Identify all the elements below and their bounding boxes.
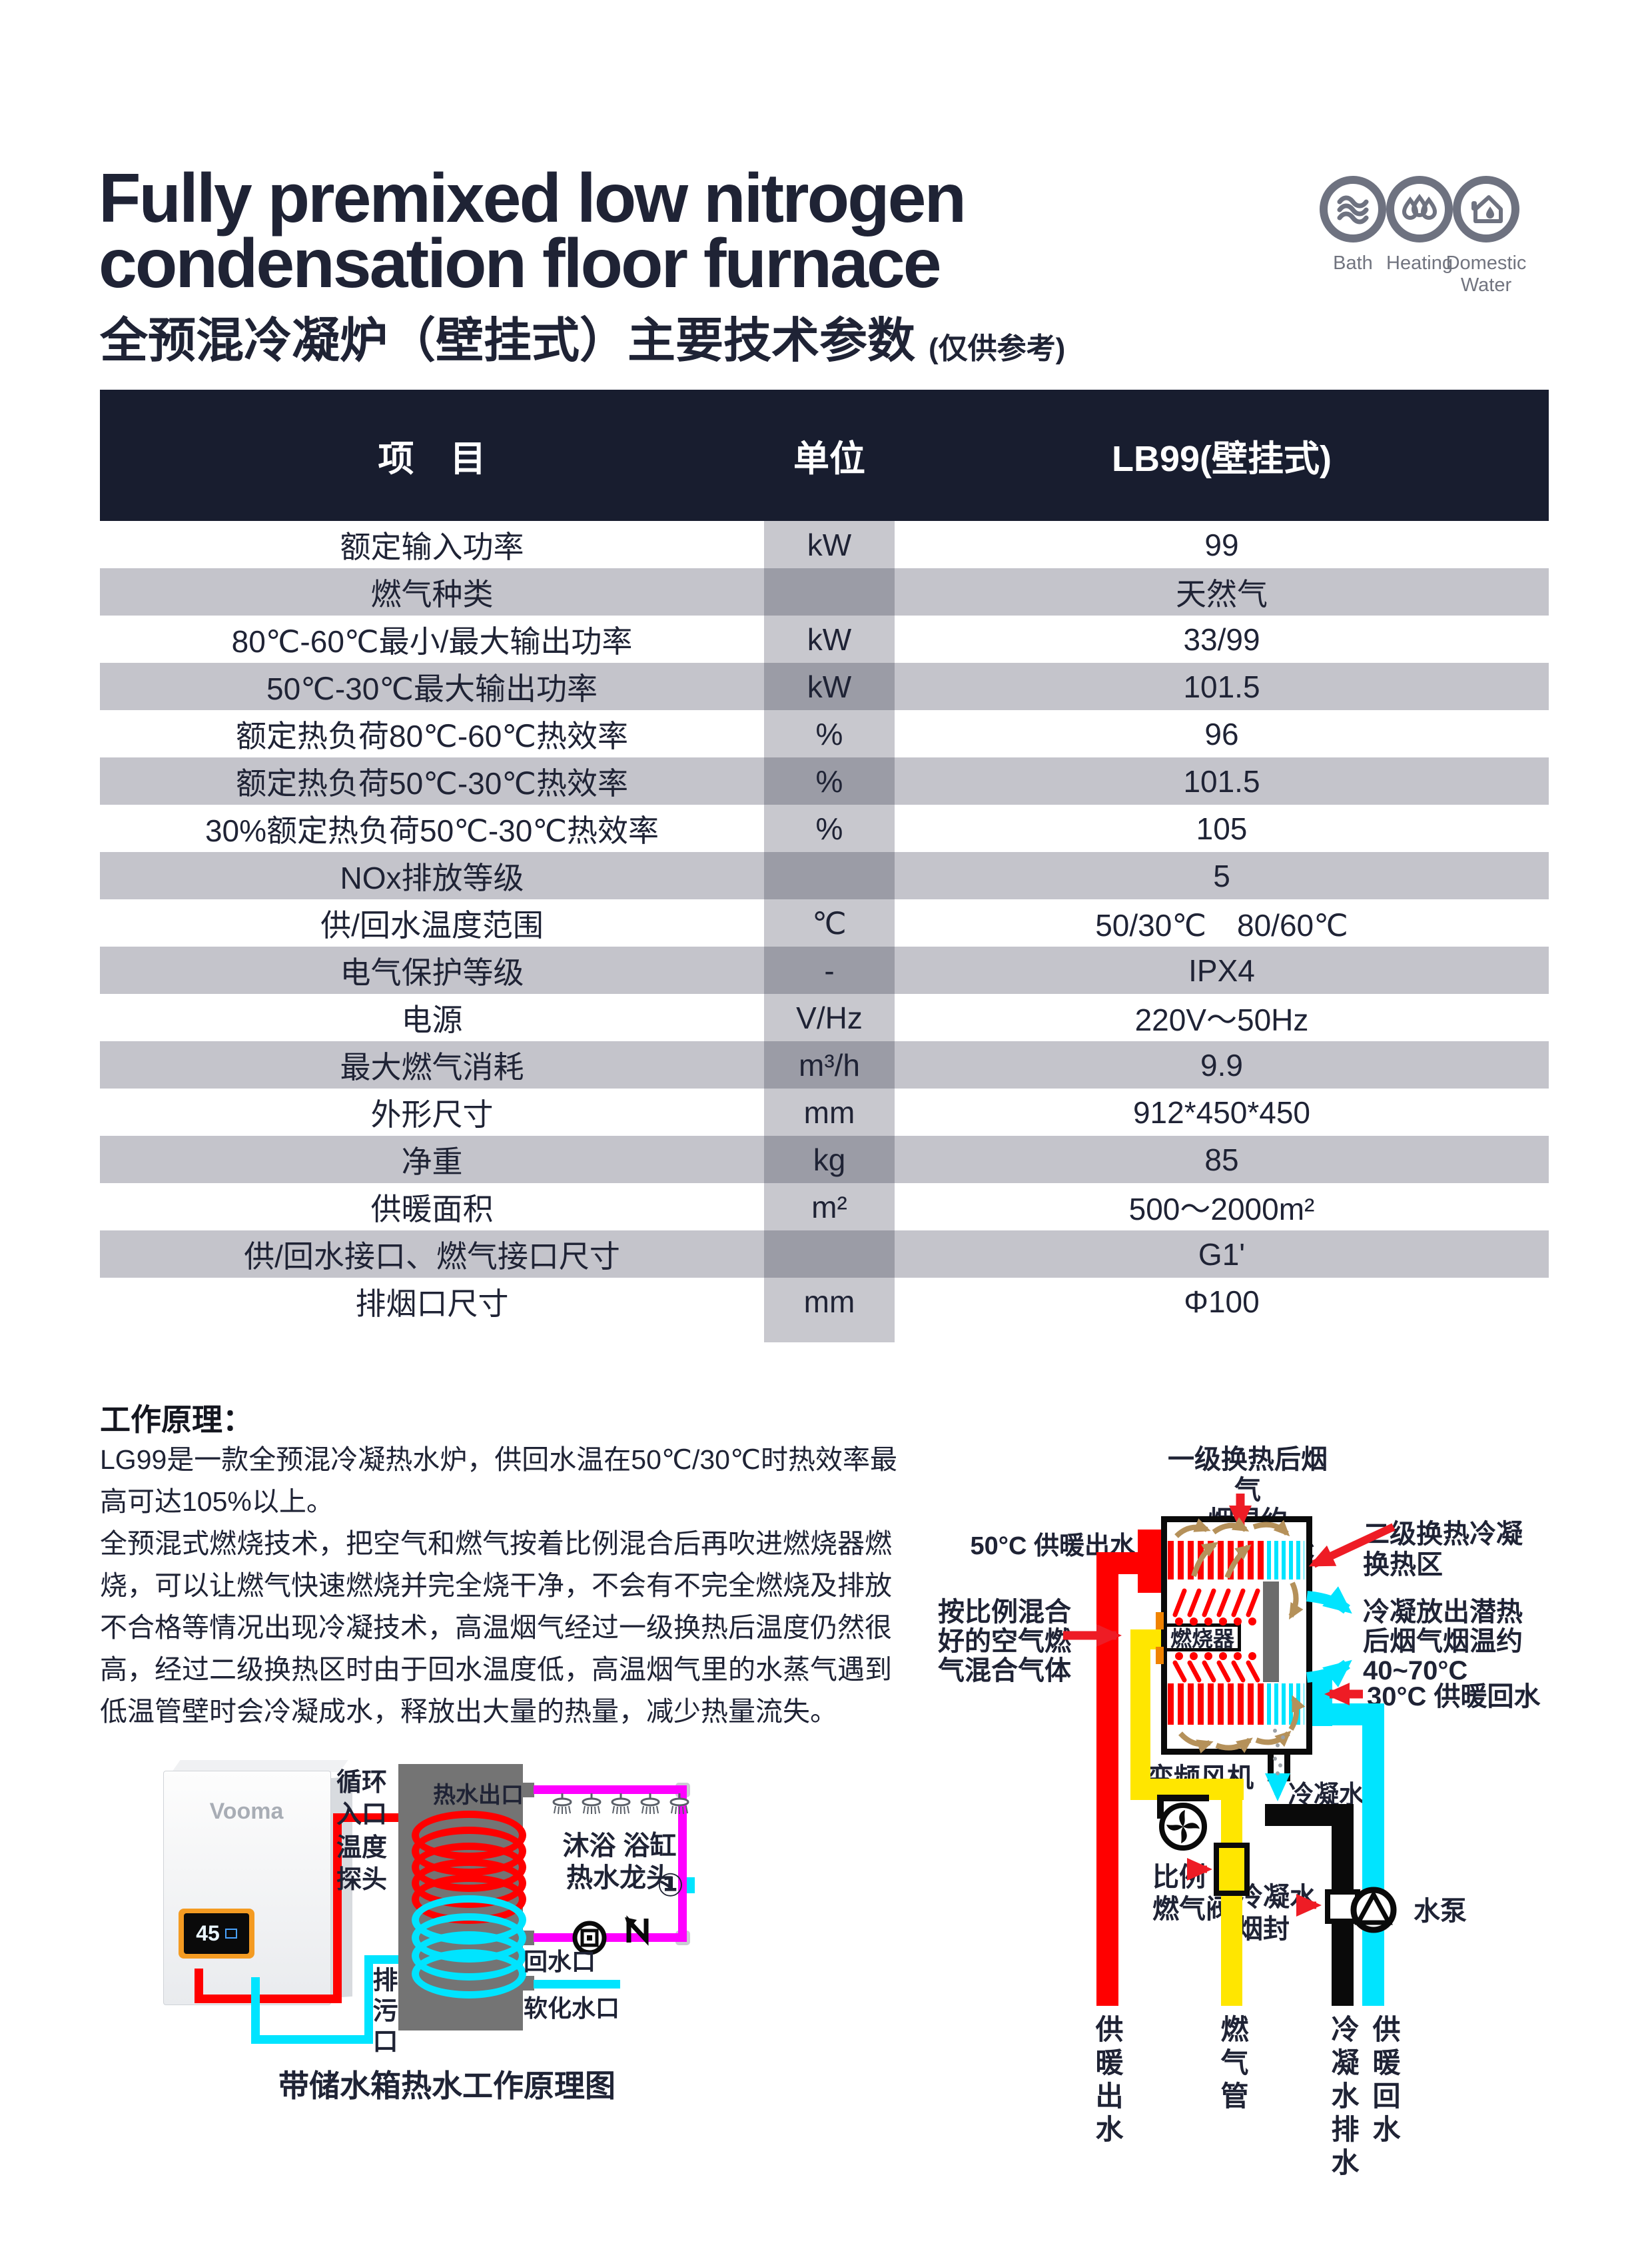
row-value: 99 xyxy=(895,521,1549,568)
row-unit: m³/h xyxy=(764,1041,895,1089)
pipe-segment xyxy=(195,1995,342,2003)
drain-port-label: 排污口 xyxy=(367,1967,398,2058)
row-unit xyxy=(764,568,895,616)
page-title-zh-row: 全预混冷凝炉（壁挂式）主要技术参数 (仅供参考) xyxy=(100,301,1065,371)
circulation-inlet-line1: 循环 xyxy=(336,1767,387,1799)
cold-water-inlet-stub xyxy=(687,1877,695,1893)
badge-domestic-label-line2: Water xyxy=(1443,274,1529,296)
table-row: 最大燃气消耗m³/h9.9 xyxy=(100,1041,1549,1089)
shower-head-icon xyxy=(580,1793,604,1817)
row-unit: % xyxy=(764,710,895,757)
row-unit: m² xyxy=(764,1183,895,1230)
table-row: 电源V/Hz220V～50Hz xyxy=(100,994,1549,1041)
row-unit: kW xyxy=(764,521,895,568)
row-item: 电源 xyxy=(100,994,764,1041)
burner-droplets-upper xyxy=(1175,1617,1256,1625)
shower-text-line1: 沐浴 浴缸 xyxy=(560,1831,679,1861)
page-title-en-line2: condensation floor furnace xyxy=(99,232,940,296)
shower-head-icon xyxy=(638,1793,662,1817)
spec-table: 项 目 单位 LB99(壁挂式) 额定输入功率kW99 燃气种类天然气 80℃-… xyxy=(100,390,1549,1342)
row-value: 天然气 xyxy=(895,568,1549,616)
col-header-unit: 单位 xyxy=(764,390,895,521)
badge-domestic-water: Domestic Water xyxy=(1443,175,1529,296)
table-row: 供暖面积m²500～2000m² xyxy=(100,1183,1549,1230)
shower-head-icon xyxy=(609,1793,633,1817)
temp-probe-line1: 温度 xyxy=(336,1832,387,1864)
row-item: 额定热负荷80℃-60℃热效率 xyxy=(100,710,764,757)
row-unit: kg xyxy=(764,1136,895,1183)
table-row: 80℃-60℃最小/最大输出功率kW33/99 xyxy=(100,616,1549,663)
page-title-en-line1: Fully premixed low nitrogen xyxy=(99,167,965,230)
row-unit: % xyxy=(764,805,895,852)
arrow-condensed-flue-1 xyxy=(1307,1596,1347,1609)
row-value: 101.5 xyxy=(895,663,1549,710)
table-row: 电气保护等级-IPX4 xyxy=(100,947,1549,994)
principle-para-2: 全预混式燃烧技术，把空气和燃气按着比例混合后再吹进燃烧器燃烧，可以让燃气快速燃烧… xyxy=(100,1523,899,1733)
row-unit: mm xyxy=(764,1089,895,1136)
spec-table-header: 项 目 单位 LB99(壁挂式) xyxy=(100,390,1549,521)
spec-table-body: 额定输入功率kW99 燃气种类天然气 80℃-60℃最小/最大输出功率kW33/… xyxy=(100,521,1549,1325)
table-row: 供/回水接口、燃气接口尺寸G1' xyxy=(100,1230,1549,1278)
coil-loop-cyan xyxy=(412,1949,526,1999)
row-item: 额定热负荷50℃-30℃热效率 xyxy=(100,757,764,805)
row-value: 9.9 xyxy=(895,1041,1549,1089)
pipe-label-gas: 燃气管 xyxy=(1217,2015,1248,2114)
row-value: 220V～50Hz xyxy=(895,994,1549,1041)
row-unit: % xyxy=(764,757,895,805)
row-value: G1' xyxy=(895,1230,1549,1278)
return-port-label: 回水口 xyxy=(524,1947,596,1977)
house-water-icon xyxy=(1451,175,1521,244)
row-item: 净重 xyxy=(100,1136,764,1183)
pipe-label-supply: 供暖出水 xyxy=(1092,2015,1122,2148)
row-unit: kW xyxy=(764,663,895,710)
row-value: 105 xyxy=(895,805,1549,852)
row-value: 33/99 xyxy=(895,616,1549,663)
row-item: NOx排放等级 xyxy=(100,852,764,899)
unit-column-tail xyxy=(764,1325,895,1342)
burner-flames-upper xyxy=(1175,1591,1258,1615)
row-item: 燃气种类 xyxy=(100,568,764,616)
pipe-segment xyxy=(534,1933,687,1942)
hot-water-outlet-label: 热水出口 xyxy=(433,1780,524,1811)
row-unit: V/Hz xyxy=(764,994,895,1041)
table-row: 净重kg85 xyxy=(100,1136,1549,1183)
flue-circulation-arrows xyxy=(1176,1525,1296,1748)
table-row: 供/回水温度范围℃50/30℃ 80/60℃ xyxy=(100,899,1549,947)
row-value: 50/30℃ 80/60℃ xyxy=(895,899,1549,947)
row-unit: mm xyxy=(764,1278,895,1325)
table-row: NOx排放等级5 xyxy=(100,852,1549,899)
row-unit: - xyxy=(764,947,895,994)
table-row: 燃气种类天然气 xyxy=(100,568,1549,616)
tank-stub xyxy=(523,1783,534,1797)
row-item: 50℃-30℃最大输出功率 xyxy=(100,663,764,710)
row-value: 85 xyxy=(895,1136,1549,1183)
boiler-display-screen: 45 xyxy=(184,1913,249,1954)
circulation-inlet-label: 循环 入口 xyxy=(336,1767,387,1831)
principle-text: LG99是一款全预混冷凝热水炉，供回水温在50℃/30℃时热效率最高可达105%… xyxy=(100,1439,899,1733)
pipe-segment xyxy=(251,2035,373,2044)
row-item: 80℃-60℃最小/最大输出功率 xyxy=(100,616,764,663)
row-unit: ℃ xyxy=(764,899,895,947)
row-value: Φ100 xyxy=(895,1278,1549,1325)
table-row: 排烟口尺寸mmΦ100 xyxy=(100,1278,1549,1325)
principle-heading: 工作原理： xyxy=(100,1396,253,1440)
badge-domestic-label-line1: Domestic xyxy=(1443,252,1529,274)
row-value: 912*450*450 xyxy=(895,1089,1549,1136)
pipe-label-condensate: 冷凝水排水 xyxy=(1328,2015,1358,2181)
row-item: 供/回水温度范围 xyxy=(100,899,764,947)
row-value: 500～2000m² xyxy=(895,1183,1549,1230)
temp-probe-label: 温度 探头 xyxy=(336,1832,387,1896)
arrow-secondary-zone xyxy=(1314,1527,1394,1564)
product-spec-page: Fully premixed low nitrogen condensation… xyxy=(0,0,1652,2241)
row-item: 30%额定热负荷50℃-30℃热效率 xyxy=(100,805,764,852)
row-unit: kW xyxy=(764,616,895,663)
shower-head-icon xyxy=(667,1793,691,1817)
table-row: 30%额定热负荷50℃-30℃热效率%105 xyxy=(100,805,1549,852)
soft-water-port-label: 软化水口 xyxy=(524,1993,619,2024)
table-row: 外形尺寸mm912*450*450 xyxy=(100,1089,1549,1136)
check-valve-icon xyxy=(622,1915,654,1947)
flue-mist-dots xyxy=(1273,1729,1285,1775)
table-row: 额定热负荷50℃-30℃热效率%101.5 xyxy=(100,757,1549,805)
pipe-label-return: 供暖回水 xyxy=(1369,2015,1400,2148)
burner-flames-lower xyxy=(1175,1663,1258,1680)
tank-diagram-caption: 带储水箱热水工作原理图 xyxy=(278,2070,616,2101)
boiler-brand-logo: Vooma xyxy=(163,1799,330,1825)
display-temperature-value: 45 xyxy=(196,1921,220,1946)
col-header-item: 项 目 xyxy=(100,390,764,521)
temp-probe-line2: 探头 xyxy=(336,1864,387,1896)
arrow-condensed-flue-2 xyxy=(1307,1664,1347,1677)
table-row: 50℃-30℃最大输出功率kW101.5 xyxy=(100,663,1549,710)
page-title-zh: 全预混冷凝炉（壁挂式）主要技术参数 xyxy=(100,301,915,371)
row-item: 最大燃气消耗 xyxy=(100,1041,764,1089)
principle-para-1: LG99是一款全预混冷凝热水炉，供回水温在50℃/30℃时热效率最高可达105%… xyxy=(100,1439,899,1523)
row-item: 供暖面积 xyxy=(100,1183,764,1230)
pipe-segment xyxy=(251,1977,260,2044)
table-row: 额定热负荷80℃-60℃热效率%96 xyxy=(100,710,1549,757)
table-row: 额定输入功率kW99 xyxy=(100,521,1549,568)
row-item: 供/回水接口、燃气接口尺寸 xyxy=(100,1230,764,1278)
row-unit xyxy=(764,1230,895,1278)
row-item: 额定输入功率 xyxy=(100,521,764,568)
burner-droplets-lower xyxy=(1175,1652,1256,1660)
row-unit xyxy=(764,852,895,899)
shower-head-icon xyxy=(550,1793,574,1817)
one-circle-mark: ① xyxy=(657,1871,684,1901)
row-value: IPX4 xyxy=(895,947,1549,994)
circulation-inlet-line2: 入口 xyxy=(336,1799,387,1831)
display-mode-icon xyxy=(225,1929,237,1939)
furnace-flow-overlay xyxy=(933,1432,1532,2032)
pipe-segment xyxy=(534,1980,620,1989)
row-item: 外形尺寸 xyxy=(100,1089,764,1136)
row-value: 101.5 xyxy=(895,757,1549,805)
row-value: 96 xyxy=(895,710,1549,757)
row-item: 排烟口尺寸 xyxy=(100,1278,764,1325)
col-header-model: LB99(壁挂式) xyxy=(895,390,1549,521)
row-value: 5 xyxy=(895,852,1549,899)
page-title-note: (仅供参考) xyxy=(929,324,1065,371)
row-item: 电气保护等级 xyxy=(100,947,764,994)
